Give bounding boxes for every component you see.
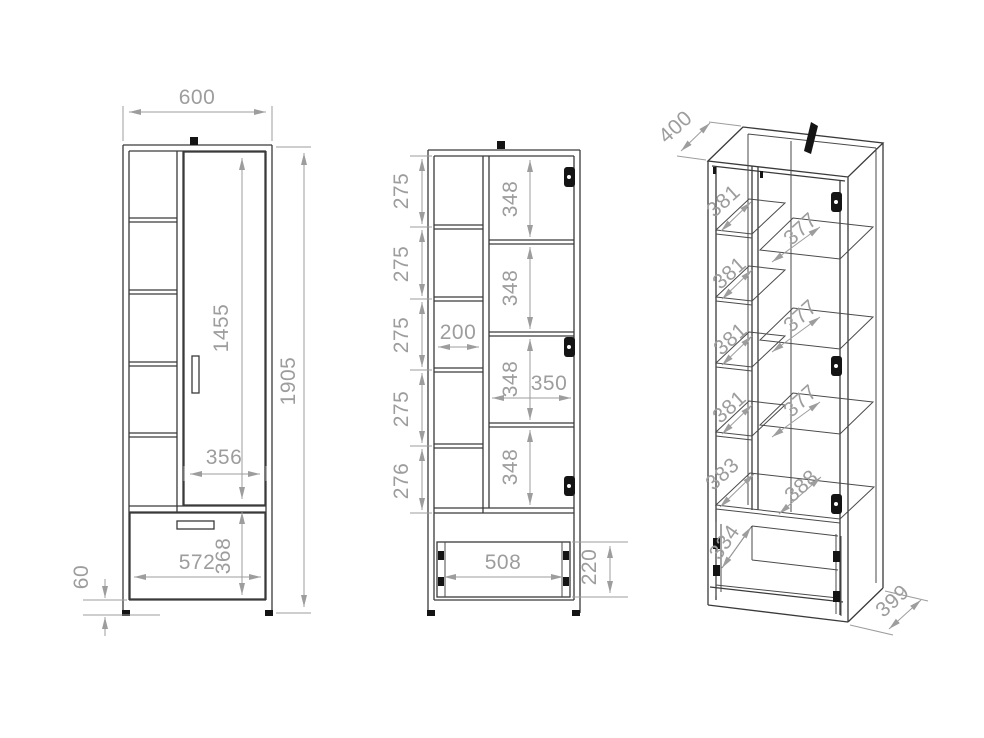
center-divider	[752, 166, 758, 510]
dim-shelf-depth-r4: 388	[780, 465, 823, 507]
panel-dot	[713, 167, 716, 174]
dim-drawer-front-height: 368	[212, 538, 235, 575]
dim-drawer-depth: 334	[705, 521, 745, 564]
dim-shelf-depth-r3: 377	[779, 380, 822, 422]
dim-drawer-front-width: 572	[179, 551, 216, 574]
dim-gap-right-4: 348	[499, 449, 522, 486]
shelves-right	[489, 240, 574, 427]
front-view: 600 1905 1455 356 368 572 60	[70, 86, 311, 636]
door-handle	[192, 356, 199, 393]
wardrobe-technical-drawing: 600 1905 1455 356 368 572 60	[0, 0, 984, 738]
slide-clip-icon	[833, 591, 840, 602]
dim-gap-right-1: 348	[499, 181, 522, 218]
dim-door-width: 356	[206, 446, 243, 469]
slide-clip-icon	[563, 577, 569, 586]
hinge-pin	[834, 502, 838, 506]
hinge-pin	[567, 484, 571, 488]
dim-gap-left-5: 276	[390, 463, 413, 500]
dim-gap-left-1: 275	[390, 173, 413, 210]
hinge-pin	[834, 200, 838, 204]
dim-gap-right-3: 348	[499, 361, 522, 398]
dim-shelf-depth-l1: 381	[702, 180, 745, 222]
dim-gap-left-3: 275	[390, 317, 413, 354]
slide-clip-icon	[438, 551, 444, 560]
slide-clip-icon	[833, 551, 840, 562]
slide-clip-icon	[438, 577, 444, 586]
dim-left-inner-width: 200	[440, 321, 477, 344]
dim-shelf-depth-l4: 381	[708, 386, 751, 428]
wall-bracket-icon	[497, 141, 505, 149]
hinge-pin	[567, 345, 571, 349]
dim-door-height: 1455	[210, 304, 233, 353]
dim-plinth-height: 60	[70, 565, 93, 589]
dim-drawer-box-height: 220	[578, 549, 601, 586]
foot-right	[572, 610, 580, 616]
drawer-handle-slot	[177, 521, 214, 529]
foot-left	[427, 610, 435, 616]
dim-right-inner-width: 350	[531, 372, 568, 395]
foot-right	[265, 610, 273, 616]
cabinet-frame	[123, 145, 272, 613]
dim-drawer-inner-width: 508	[485, 551, 522, 574]
wall-bracket-icon	[804, 122, 818, 154]
drawing-canvas: 600 1905 1455 356 368 572 60	[0, 0, 984, 738]
wall-bracket-icon	[190, 137, 198, 145]
dim-gap-right-2: 348	[499, 270, 522, 307]
dim-gap-left-4: 275	[390, 391, 413, 428]
slide-clip-icon	[563, 551, 569, 560]
shelves	[129, 218, 177, 437]
dim-shelf-depth-r1: 377	[779, 208, 822, 250]
ext-plinth	[83, 600, 160, 615]
hinge-pin	[567, 175, 571, 179]
front-open-view: 275 275 275 275 276 348 348 348 348 200 …	[390, 141, 628, 616]
dim-overall-height: 1905	[277, 357, 300, 406]
dim-shelf-depth-r2: 377	[779, 295, 822, 337]
dim-gap-left-2: 275	[390, 246, 413, 283]
dim-overall-width: 600	[179, 86, 216, 109]
ext-width	[123, 106, 272, 141]
ext-left-chain	[410, 156, 432, 513]
panel-dot	[760, 171, 763, 178]
hinge-pin	[834, 364, 838, 368]
dim-base-depth: 399	[871, 580, 914, 622]
slide-clip-icon	[713, 565, 720, 576]
isometric-view: 400 381 381 381 381 383 377 377 377 388 …	[654, 106, 928, 635]
dim-shelf-depth-l2: 381	[708, 252, 751, 294]
